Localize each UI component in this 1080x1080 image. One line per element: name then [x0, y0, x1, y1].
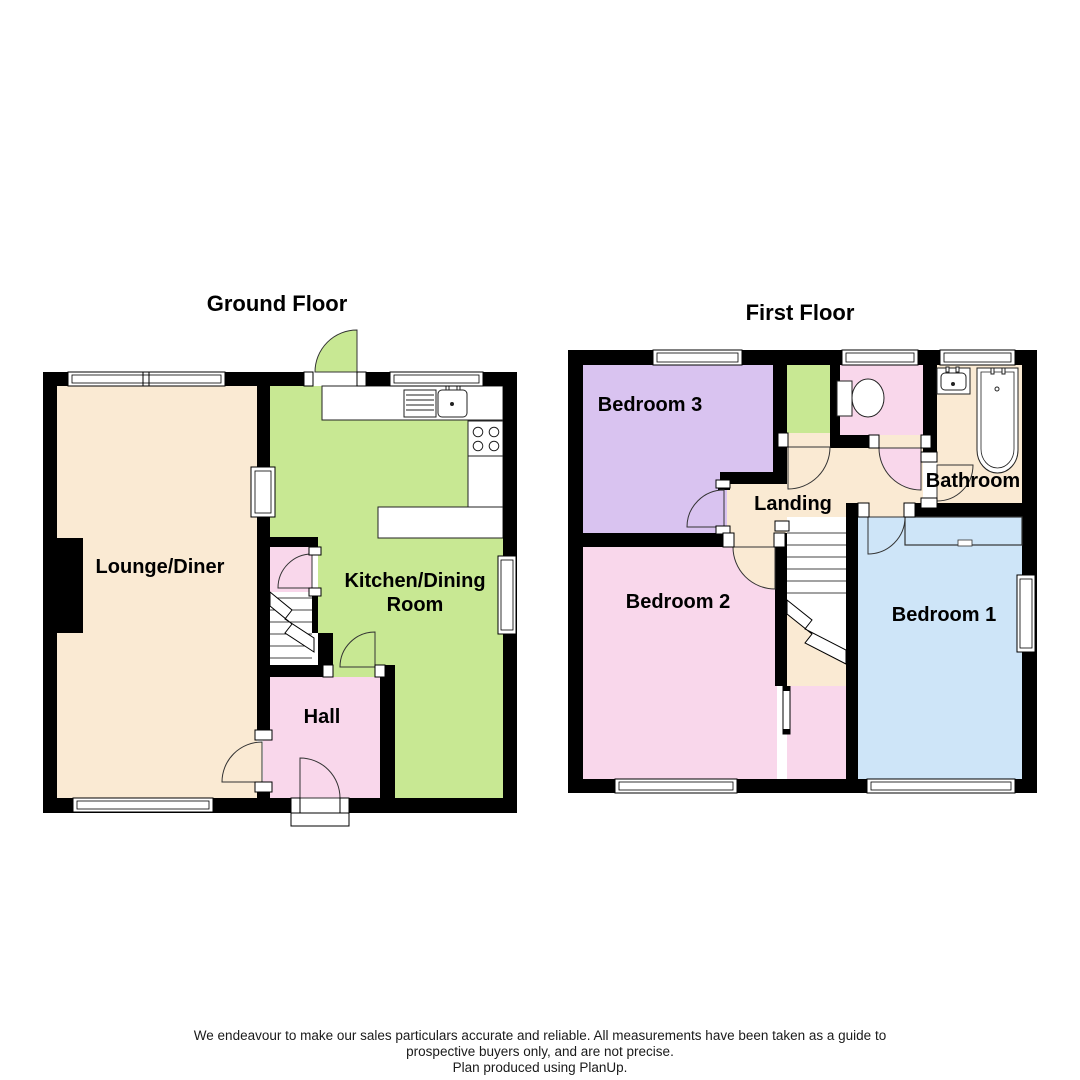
window — [615, 779, 737, 793]
kitchen-dining-label: Kitchen/Dining — [344, 570, 485, 592]
room-lounge-diner — [57, 386, 257, 798]
bedroom-2-alcove — [787, 686, 846, 779]
drainer — [404, 390, 436, 417]
chimney-breast — [57, 538, 83, 633]
serving-hatch — [251, 467, 275, 517]
disclaimer-line-1: We endeavour to make our sales particula… — [194, 1028, 886, 1043]
bathtub-icon — [977, 368, 1018, 473]
back-door-arc — [315, 330, 357, 372]
bedroom-3-label: Bedroom 3 — [598, 394, 702, 416]
disclaimer-line-3: Plan produced using PlanUp. — [453, 1060, 628, 1075]
first-floor-title: First Floor — [746, 300, 855, 325]
room-bedroom-1 — [858, 517, 1022, 779]
disclaimer-line-2: prospective buyers only, and are not pre… — [406, 1044, 674, 1059]
first-floor-plan: First Floor — [568, 300, 1037, 793]
kitchen-dining-label-line2: Room — [387, 594, 444, 616]
window — [498, 556, 516, 634]
ground-floor-plan: Ground Floor — [43, 291, 517, 826]
plughole — [451, 403, 454, 406]
floorplan-drawing: Ground Floor — [0, 0, 1080, 1080]
window — [390, 372, 483, 386]
room-bedroom-2 — [583, 547, 777, 779]
bedroom-1-label: Bedroom 1 — [892, 604, 996, 626]
window — [73, 798, 213, 812]
airing-cupboard — [787, 365, 830, 433]
window — [653, 350, 742, 365]
hall-label: Hall — [304, 706, 341, 728]
window — [842, 350, 918, 365]
window — [68, 372, 225, 386]
stud-partition — [783, 686, 790, 734]
footer-disclaimer: We endeavour to make our sales particula… — [194, 1028, 886, 1075]
ground-floor-title: Ground Floor — [207, 291, 348, 316]
floorplan-page: Ground Floor — [0, 0, 1080, 1080]
hob-icon — [468, 421, 503, 456]
window — [867, 779, 1015, 793]
toilet-icon — [837, 379, 884, 417]
front-door-step — [291, 813, 349, 826]
bedroom-2-label: Bedroom 2 — [626, 591, 730, 613]
built-in-wardrobe — [905, 517, 1022, 546]
window — [940, 350, 1015, 365]
counter-peninsula — [378, 507, 503, 538]
window — [1017, 575, 1035, 652]
lounge-diner-label: Lounge/Diner — [96, 556, 225, 578]
basin-icon — [937, 367, 970, 394]
landing-label: Landing — [754, 493, 832, 515]
bathroom-label: Bathroom — [926, 470, 1020, 492]
